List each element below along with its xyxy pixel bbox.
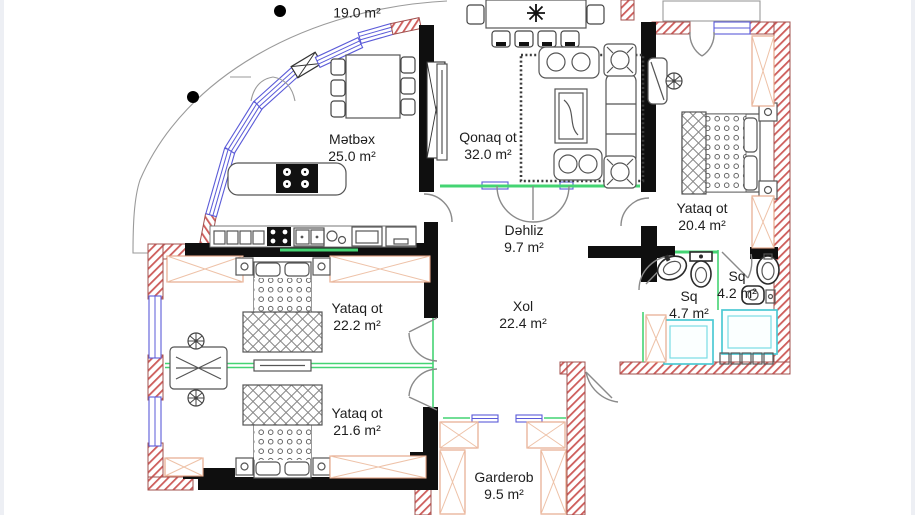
wall	[567, 362, 585, 515]
window	[714, 22, 750, 34]
door-arc	[424, 194, 452, 222]
wardrobe-cabinet	[541, 450, 566, 514]
kitchen-counter	[210, 226, 416, 247]
window	[516, 415, 542, 422]
window	[225, 102, 263, 154]
cabinet	[648, 58, 667, 104]
sofa	[606, 74, 636, 164]
wardrobe-cabinet	[440, 450, 465, 514]
floor-plan-drawing	[0, 0, 915, 515]
room-area: 9.7 m²	[504, 239, 544, 256]
chair	[331, 59, 345, 75]
tv-cabinet	[437, 64, 447, 160]
room-label-bedroom-west: Yataq ot 22.2 m²	[331, 300, 382, 334]
ceiling-fan-icon	[188, 390, 204, 406]
room-name: Qonaq ot	[459, 129, 517, 146]
chair	[401, 99, 415, 115]
wall-pier	[391, 18, 422, 35]
wall	[588, 246, 641, 258]
wardrobe-cabinet	[167, 256, 243, 282]
chair	[467, 5, 484, 24]
balcony-east-outline	[663, 1, 760, 21]
wall	[148, 244, 163, 299]
kitchen-furniture	[210, 55, 416, 247]
floor-plan-page: 19.0 m² Mətbəx 25.0 m² Qonaq ot 32.0 m² …	[0, 0, 915, 515]
armchair	[604, 156, 636, 188]
dining-table-large	[467, 0, 604, 47]
column	[187, 91, 199, 103]
dresser	[254, 360, 311, 371]
wall	[621, 0, 634, 20]
room-name: Xol	[499, 298, 546, 315]
balcony-arc	[133, 1, 447, 253]
door-arc	[690, 32, 714, 56]
bathtub	[722, 310, 777, 354]
loveseat	[539, 47, 599, 78]
nightstand	[236, 458, 253, 475]
ceiling-fan-icon	[188, 333, 204, 349]
room-name: Mətbəx	[328, 131, 375, 148]
room-label-wardrobe-room: Garderob 9.5 m²	[474, 469, 533, 503]
wardrobe-cabinet	[752, 196, 774, 248]
wall	[198, 477, 438, 490]
wall	[652, 22, 690, 34]
room-name: Yataq ot	[331, 405, 382, 422]
chair	[401, 78, 415, 94]
window	[149, 296, 161, 358]
room-name: Sq	[717, 268, 757, 285]
bathtub	[664, 320, 713, 364]
room-name: Garderob	[474, 469, 533, 486]
room-area: 20.4 m²	[676, 217, 727, 234]
ceiling-fan-icon	[666, 73, 682, 89]
room-name: Dəhliz	[504, 222, 544, 239]
cooktop-icon	[267, 227, 291, 246]
room-area: 21.6 m²	[331, 422, 382, 439]
pillow	[744, 156, 757, 190]
pillow	[256, 263, 280, 276]
door-arc	[621, 198, 649, 226]
stove-icon	[276, 164, 318, 193]
dining-table	[331, 55, 415, 118]
room-area: 9.5 m²	[474, 486, 533, 503]
chair	[331, 101, 345, 117]
chandelier-icon	[527, 4, 545, 22]
desk	[170, 347, 227, 389]
window	[254, 68, 299, 110]
room-label-bathroom-large: Sq 4.7 m²	[669, 288, 709, 322]
wardrobe-cabinet	[330, 256, 430, 282]
room-area: 32.0 m²	[459, 146, 517, 163]
wall	[148, 355, 163, 400]
room-area: 19.0 m²	[333, 5, 380, 22]
entry-door	[586, 372, 618, 402]
bathroom-fixtures	[646, 249, 779, 364]
chair	[587, 5, 604, 24]
toilet-icon	[690, 252, 712, 287]
room-label-bathroom-small: Sq 4.2 m²	[717, 268, 757, 302]
wall	[148, 443, 163, 480]
pillow	[744, 118, 757, 152]
room-label-living-room: Qonaq ot 32.0 m²	[459, 129, 517, 163]
bed	[682, 112, 760, 194]
bed	[243, 262, 322, 352]
armchair	[604, 44, 636, 76]
wall	[415, 487, 431, 515]
wardrobe-cabinet	[330, 456, 426, 478]
curved-window-band	[199, 18, 422, 252]
nightstand	[313, 458, 330, 475]
window	[149, 397, 161, 446]
bed	[243, 385, 322, 478]
nightstand	[236, 258, 253, 275]
room-area: 22.2 m²	[331, 317, 382, 334]
wardrobe-cabinet	[752, 36, 774, 106]
nightstand	[313, 258, 330, 275]
room-area: 22.4 m²	[499, 315, 546, 332]
room-label-hall: Xol 22.4 m²	[499, 298, 546, 332]
window	[472, 415, 498, 422]
window	[358, 24, 394, 44]
wardrobe-cabinet	[527, 422, 565, 448]
bedroom-west-furniture	[167, 256, 430, 406]
column	[274, 5, 286, 17]
pillow	[256, 462, 280, 475]
wall	[748, 22, 776, 34]
room-label-bedroom-east: Yataq ot 20.4 m²	[676, 200, 727, 234]
room-name: Yataq ot	[676, 200, 727, 217]
door-arc	[497, 186, 569, 222]
coffee-table	[555, 89, 587, 143]
loveseat	[554, 149, 602, 180]
wardrobe-cabinet	[646, 315, 666, 362]
kitchen-island	[228, 163, 346, 195]
room-name: Yataq ot	[331, 300, 382, 317]
room-label-kitchen: Mətbəx 25.0 m²	[328, 131, 375, 165]
chair	[331, 80, 345, 96]
room-label-bedroom-south: Yataq ot 21.6 m²	[331, 405, 382, 439]
room-name: Sq	[669, 288, 709, 305]
wardrobe-cabinet	[440, 422, 478, 448]
pillow	[285, 462, 309, 475]
room-area: 25.0 m²	[328, 148, 375, 165]
pillow	[285, 263, 309, 276]
room-label-hallway: Dəhliz 9.7 m²	[504, 222, 544, 256]
thresholds	[165, 186, 718, 418]
room-area: 4.2 m²	[717, 285, 757, 302]
room-label-balcony: 19.0 m²	[333, 5, 380, 22]
chair	[401, 57, 415, 73]
wardrobe-cabinet	[165, 458, 203, 476]
room-area: 4.7 m²	[669, 305, 709, 322]
